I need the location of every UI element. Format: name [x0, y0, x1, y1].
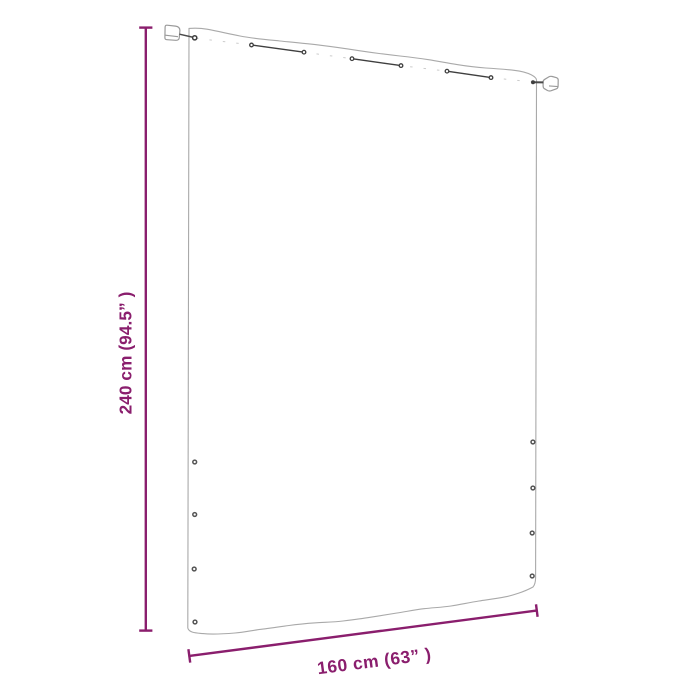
svg-text:240 cm (94.5” ): 240 cm (94.5” ) [116, 292, 136, 415]
